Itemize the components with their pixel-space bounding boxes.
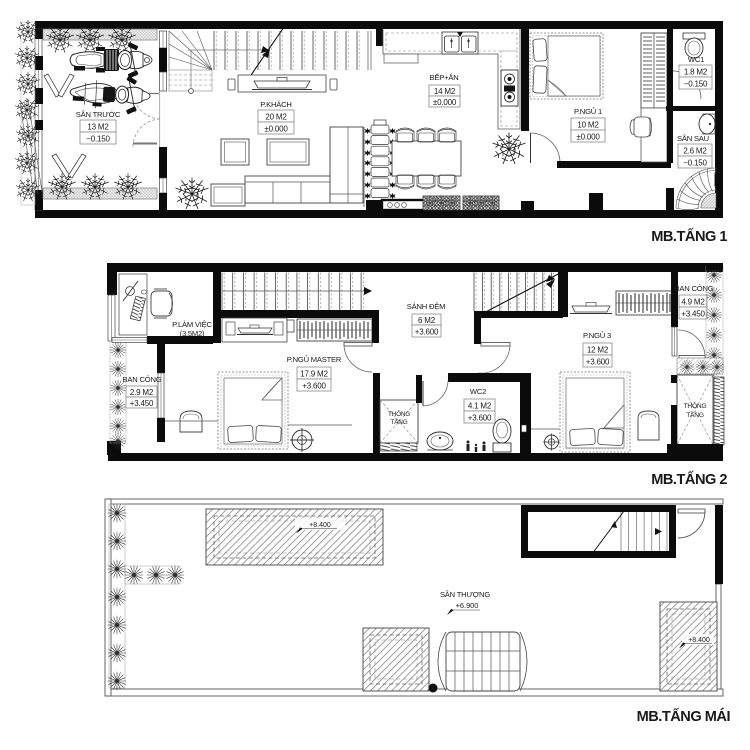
- svg-text:+3.600: +3.600: [415, 327, 439, 336]
- svg-text:2.9 M2: 2.9 M2: [130, 388, 154, 397]
- svg-text:BẾP+ĂN: BẾP+ĂN: [430, 72, 459, 82]
- svg-text:12 M2: 12 M2: [587, 346, 609, 355]
- svg-text:4.9 M2: 4.9 M2: [681, 298, 705, 307]
- svg-text:6 M2: 6 M2: [418, 316, 436, 325]
- svg-text:±0.000: ±0.000: [576, 133, 600, 142]
- svg-text:MB.TẤNG 2: MB.TẤNG 2: [651, 471, 727, 488]
- svg-text:+8.400: +8.400: [309, 522, 331, 529]
- svg-text:BAN CÔNG: BAN CÔNG: [123, 375, 162, 384]
- svg-text:MB.TẤNG MÁI: MB.TẤNG MÁI: [637, 708, 731, 725]
- svg-text:14 M2: 14 M2: [434, 87, 456, 96]
- svg-text:BAN CÔNG: BAN CÔNG: [675, 284, 714, 293]
- svg-text:20 M2: 20 M2: [265, 113, 287, 122]
- svg-text:P.KHÁCH: P.KHÁCH: [260, 100, 291, 109]
- svg-text:+3.600: +3.600: [586, 358, 610, 367]
- svg-text:4.1 M2: 4.1 M2: [468, 402, 492, 411]
- svg-text:±0.000: ±0.000: [433, 98, 457, 107]
- svg-text:+3.450: +3.450: [681, 310, 705, 319]
- svg-text:13 M2: 13 M2: [87, 123, 109, 132]
- svg-text:P.LÀM VIỆC: P.LÀM VIỆC: [172, 320, 212, 329]
- svg-text:WC2: WC2: [470, 387, 486, 396]
- svg-text:1.8 M2: 1.8 M2: [684, 68, 708, 77]
- svg-text:17.9 M2: 17.9 M2: [300, 370, 328, 379]
- svg-text:+3.450: +3.450: [130, 399, 154, 408]
- svg-text:P.NGỦ MASTER: P.NGỦ MASTER: [287, 355, 342, 364]
- svg-text:±0.000: ±0.000: [264, 125, 288, 134]
- svg-text:−0.150: −0.150: [683, 159, 707, 168]
- svg-text:+3.600: +3.600: [302, 382, 326, 391]
- svg-text:−0.150: −0.150: [684, 80, 708, 89]
- svg-text:(3.5M2): (3.5M2): [180, 329, 205, 338]
- svg-text:+6.900: +6.900: [456, 601, 479, 610]
- svg-text:THÔNG: THÔNG: [684, 401, 707, 410]
- svg-text:P.NGỦ 1: P.NGỦ 1: [574, 107, 602, 116]
- svg-text:SÂN TRƯỚC: SÂN TRƯỚC: [76, 110, 121, 119]
- svg-text:−0.150: −0.150: [86, 135, 110, 144]
- svg-text:WC1: WC1: [688, 55, 704, 64]
- svg-text:10 M2: 10 M2: [577, 121, 599, 130]
- svg-text:SÂN THƯỢNG: SÂN THƯỢNG: [440, 590, 490, 599]
- svg-text:+8.400: +8.400: [688, 637, 710, 644]
- svg-text:THÔNG: THÔNG: [388, 409, 410, 418]
- svg-text:2.6 M2: 2.6 M2: [683, 147, 707, 156]
- svg-text:SÂN SAU: SÂN SAU: [677, 134, 709, 143]
- svg-text:+3.600: +3.600: [468, 414, 492, 423]
- svg-text:MB.TẤNG 1: MB.TẤNG 1: [651, 228, 727, 245]
- svg-text:SẢNH ĐỆM: SẢNH ĐỆM: [407, 302, 445, 311]
- svg-text:P.NGỦ 3: P.NGỦ 3: [583, 331, 611, 340]
